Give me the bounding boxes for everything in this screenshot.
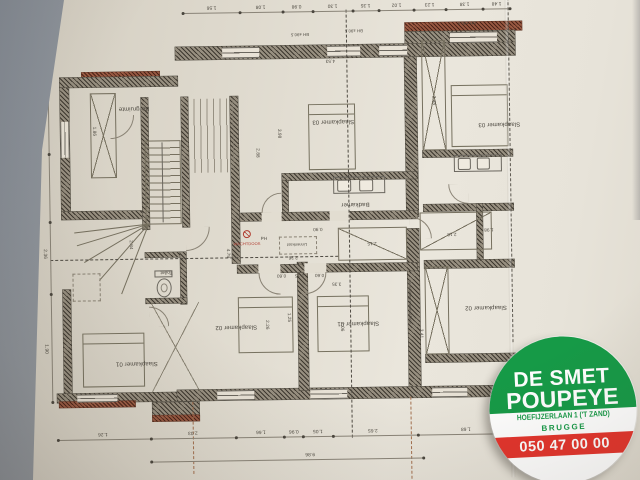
- logo-red-band: 050 47 00 00: [491, 431, 639, 459]
- dimension-tick: [481, 7, 484, 10]
- dimension-text: 1.25: [287, 313, 292, 322]
- room-label: Badkamer: [341, 201, 369, 208]
- dimension-text: 1.86: [92, 127, 97, 136]
- dimension-tick: [49, 293, 52, 296]
- dimension-text: 2.26: [265, 320, 270, 329]
- dimension-tick: [301, 435, 304, 438]
- sink-icon: [477, 158, 490, 170]
- dimension-text: 0.60: [277, 273, 286, 278]
- dimension-text: 3.35: [332, 281, 341, 286]
- overhang-dashed-line: [410, 397, 412, 479]
- door-opening: [262, 212, 282, 222]
- room-label: Slaapkamer 03: [312, 118, 354, 125]
- wall-segment: [180, 252, 187, 304]
- window: [327, 45, 360, 56]
- dimension-tick: [181, 12, 184, 15]
- dimension-tick: [48, 221, 51, 224]
- dimension-text: 0.90: [313, 226, 322, 231]
- window: [217, 390, 254, 401]
- bed-pillow-line: [239, 306, 292, 308]
- room-label: Slaapkamer 01: [116, 360, 158, 367]
- wall-segment: [404, 57, 418, 217]
- room-label: Slaapkamer 03: [478, 121, 520, 128]
- dimension-tick: [51, 401, 54, 404]
- dimension-text: 2.88: [255, 148, 260, 157]
- window: [432, 387, 467, 398]
- logo-green-field: DE SMET POUPEYE: [486, 333, 636, 414]
- dimension-tick: [234, 436, 237, 439]
- dimension-text: 1.38: [460, 1, 470, 6]
- room-label: Bergruimte: [119, 105, 150, 112]
- stair-winder: [99, 224, 149, 281]
- dimension-text: 1.02: [392, 2, 402, 7]
- dimension-text: 1.48: [492, 1, 502, 6]
- wall-segment: [60, 76, 178, 88]
- dimension-tick: [149, 437, 152, 440]
- dimension-tick: [412, 8, 415, 11]
- door-swing: [448, 184, 468, 204]
- window-note: BH ±90.5: [345, 28, 363, 33]
- dimension-tick: [351, 9, 354, 12]
- dimension-text: 1.30: [328, 3, 338, 8]
- room-label: Slaapkamer 02: [465, 304, 507, 311]
- shower-dashed-outline: [72, 273, 100, 301]
- door-swing: [110, 115, 134, 139]
- dimension-tick: [444, 8, 447, 11]
- window: [450, 31, 497, 43]
- dimension-line: [151, 458, 423, 463]
- dimension-text: 1.26: [98, 432, 108, 437]
- bed-icon: [451, 84, 509, 147]
- dimension-text: 3.98: [277, 129, 282, 138]
- window: [379, 45, 407, 56]
- room-label: Slaapkamer 02: [215, 324, 257, 331]
- bed-pillow-line: [83, 343, 143, 345]
- dimension-text: 2.06: [340, 322, 345, 331]
- dimension-text: 2.03: [188, 430, 198, 435]
- dimension-tick: [150, 460, 153, 463]
- dimension-text: 3.41: [419, 329, 424, 338]
- dimension-tick: [47, 153, 50, 156]
- bed-pillow-line: [452, 94, 507, 96]
- dimension-line: [48, 89, 54, 402]
- section-line: [346, 10, 353, 438]
- dimension-text: 2.65: [368, 428, 378, 433]
- stair-flight: [188, 98, 234, 173]
- dimension-text: 1.56: [207, 5, 217, 10]
- logo-phone-number: 050 47 00 00: [519, 435, 610, 455]
- photo-of-floor-plan: BergruimteSlaapkamer 03Slaapkamer 03Badk…: [0, 0, 640, 480]
- floor-plan-drawing: BergruimteSlaapkamer 03Slaapkamer 03Badk…: [0, 0, 640, 480]
- dimension-text: 9.86: [305, 451, 315, 456]
- dimension-text: 2.15: [367, 241, 376, 246]
- closet-box: [424, 266, 449, 354]
- dimension-tick: [56, 438, 59, 441]
- window: [222, 47, 259, 59]
- electrical-symbol: [243, 230, 251, 238]
- dimension-text: 1.90: [44, 344, 49, 354]
- room-label: aansluiting wasmachine: [407, 280, 412, 324]
- dimension-text: 0.96: [289, 429, 299, 434]
- dimension-text: 1.23: [425, 2, 435, 7]
- dimension-text: 4.79: [226, 249, 231, 258]
- wall-segment: [63, 290, 73, 402]
- dimension-text: 2.15: [295, 273, 304, 278]
- dimension-text: 2.48: [431, 96, 436, 105]
- dimension-tick: [508, 7, 511, 10]
- dimension-text: 4.53: [326, 58, 335, 63]
- dimension-text: 2.36: [42, 249, 47, 259]
- annotation-text: PH: [261, 236, 268, 241]
- dimension-text: 2.36: [289, 255, 298, 260]
- dimension-text: 1.66: [256, 429, 266, 434]
- dimension-tick: [311, 10, 314, 13]
- room-label: Toilet: [160, 269, 172, 275]
- dimension-tick: [331, 434, 334, 437]
- dimension-text: 1.08: [256, 4, 266, 9]
- window-note: BH ±90.5: [291, 32, 309, 37]
- door-swing: [261, 193, 281, 213]
- dimension-text: 2.15: [447, 231, 456, 236]
- window: [77, 394, 117, 403]
- window: [60, 122, 70, 158]
- dimension-text: 1.35: [361, 3, 371, 8]
- toilet-icon: [157, 278, 172, 297]
- plan-labels-layer: BergruimteSlaapkamer 03Slaapkamer 03Badk…: [0, 0, 636, 5]
- sink-icon: [359, 179, 373, 191]
- dimension-tick: [281, 10, 284, 13]
- window-note: BH ±90.5: [458, 20, 476, 25]
- room-label: Linnenkast: [287, 242, 307, 247]
- dimension-tick: [422, 456, 425, 459]
- toilet-bowl-inner: [161, 283, 168, 292]
- dimension-tick: [282, 435, 285, 438]
- annotation-text: WACHTDOOS: [233, 242, 260, 247]
- dimension-text: 1.98: [484, 227, 493, 232]
- wall-segment: [62, 211, 148, 220]
- paper-edge-shadow: [632, 0, 640, 220]
- wall-segment: [423, 203, 513, 211]
- dimension-text: 2.84: [128, 240, 133, 249]
- window: [310, 389, 347, 400]
- dimension-text: 0.60: [315, 272, 324, 277]
- bed-pillow-line: [318, 305, 368, 307]
- dimension-tick: [238, 11, 241, 14]
- dimension-text: 1.05: [313, 428, 323, 433]
- dimension-text: 1.68: [461, 426, 471, 431]
- dimension-tick: [377, 9, 380, 12]
- door-opening: [330, 211, 350, 221]
- sink-icon: [458, 158, 471, 170]
- dimension-text: 0.98: [292, 4, 302, 9]
- plan-paper-sheet: BergruimteSlaapkamer 03Slaapkamer 03Badk…: [0, 0, 640, 480]
- dimension-tick: [416, 433, 419, 436]
- wall-segment: [426, 353, 516, 362]
- door-swing: [186, 227, 210, 251]
